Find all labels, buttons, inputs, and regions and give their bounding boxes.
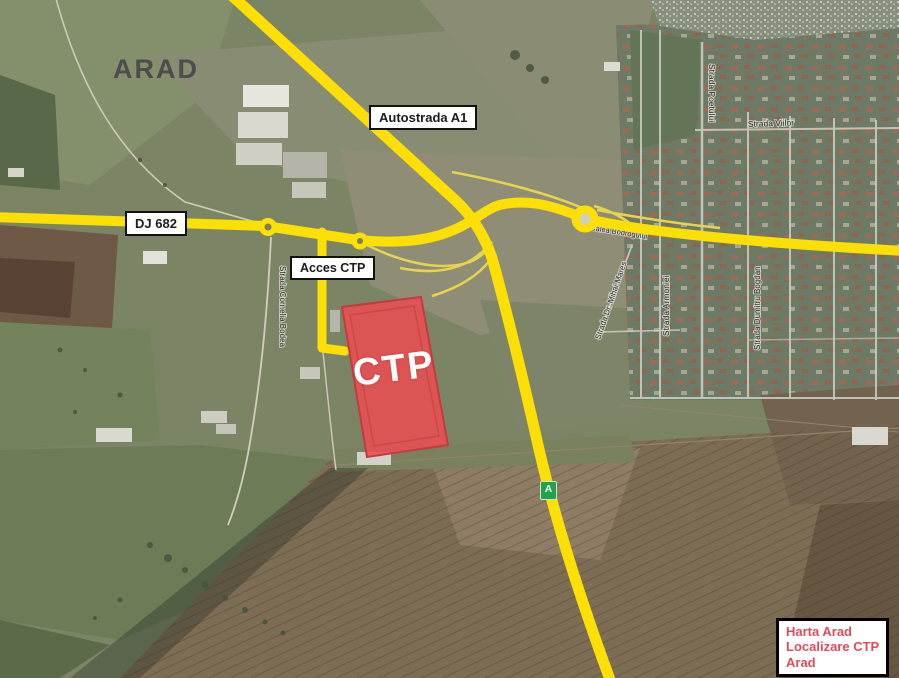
road-label-autostrada-a1: Autostrada A1 xyxy=(369,105,477,130)
street-label-armoniei: Strada Armoniei xyxy=(661,275,671,336)
city-label-arad: ARAD xyxy=(113,54,199,85)
road-label-acces-ctp: Acces CTP xyxy=(290,256,375,280)
legend-box: Harta Arad Localizare CTP Arad xyxy=(776,618,889,677)
legend-line-3: Arad xyxy=(786,655,879,670)
street-label-poetului: Strada Poetului xyxy=(707,64,717,122)
street-label-cornelia-bodea: Strada Cornelia Bodea xyxy=(278,266,287,347)
street-label-viilor: Strada Viilor xyxy=(748,117,795,129)
street-label-dumitru: Strada Dumitru Bogdan xyxy=(753,266,762,350)
map-canvas: Strada Poetului Strada Viilor Calea Bodr… xyxy=(0,0,899,678)
terrain-patches xyxy=(0,0,899,678)
legend-line-1: Harta Arad xyxy=(786,624,879,639)
satellite-map: Strada Poetului Strada Viilor Calea Bodr… xyxy=(0,0,899,678)
road-label-dj682: DJ 682 xyxy=(125,211,187,236)
legend-line-2: Localizare CTP xyxy=(786,639,879,654)
motorway-a-badge: A xyxy=(540,481,557,500)
